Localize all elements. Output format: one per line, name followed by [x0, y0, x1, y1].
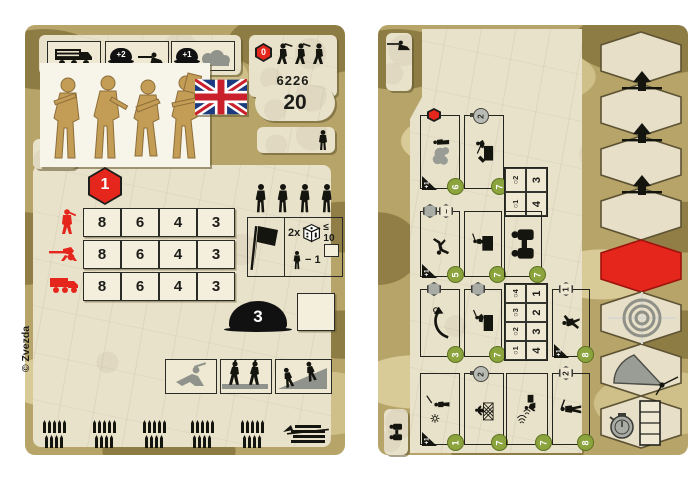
order-number-badge: 5	[447, 266, 464, 283]
marching-pair-icon	[221, 360, 269, 390]
range-band: ○4	[505, 284, 526, 303]
stat-value: 3	[212, 214, 220, 231]
dice-threshold: ≤ 10	[323, 222, 342, 244]
flag-icon	[248, 218, 282, 272]
order-number-badge: 1	[447, 434, 464, 451]
range-band: ○2	[505, 322, 526, 341]
march-penalty-hex: 0	[255, 43, 272, 62]
order-number: 7	[492, 272, 502, 277]
bonus-pennant: +1	[554, 344, 569, 358]
order-box-assault: 1 +1 8	[552, 289, 590, 357]
order-number-badge: 7	[529, 266, 546, 283]
stat-value: 4	[174, 246, 182, 263]
move-crawl-box	[165, 359, 217, 394]
stat-cell: 6	[121, 272, 159, 301]
stat-cell: 8	[83, 272, 121, 301]
order-box-observe: 7	[504, 211, 542, 277]
morale-note-box	[324, 244, 339, 257]
marching-soldiers-icon	[275, 43, 331, 65]
bonus-pennant: +1	[422, 432, 437, 446]
ammo-row	[41, 418, 333, 450]
enemy-red-hex	[601, 240, 681, 292]
climbing-slope-icon	[276, 360, 329, 390]
figures-photo	[40, 63, 210, 167]
entrench-crate-icon	[468, 135, 500, 169]
range-value: 4	[526, 341, 547, 360]
order-box-entrench: 2 7	[464, 115, 504, 189]
range-table-short: ○1 ○2 4 3	[504, 167, 548, 217]
hex-track	[600, 29, 684, 453]
climb-obstacle-icon	[468, 392, 500, 426]
signal-icon	[424, 392, 456, 426]
order-box-casualty: − +1 5	[420, 211, 460, 277]
order-box-radio: 7	[506, 373, 548, 445]
bonus-value: +1	[425, 182, 431, 189]
range-value: 3	[526, 322, 547, 341]
binoculars-icon	[389, 423, 403, 441]
order-box-smoke: +1 6	[420, 115, 460, 189]
trench-bonus-value: +2	[110, 50, 132, 59]
truck-icon-red	[49, 273, 79, 295]
copyright-text: © Zvezda	[20, 326, 32, 372]
crew-box	[257, 127, 335, 153]
stat-cell: 4	[159, 240, 197, 269]
crawling-soldier-icon	[166, 360, 214, 390]
strength-value: 3	[229, 307, 287, 327]
order-number: 7	[532, 272, 542, 277]
march-penalty-value: 0	[255, 47, 272, 57]
stat-cell: 4	[159, 208, 197, 237]
stat-cell: 6	[121, 240, 159, 269]
rally-flag-cell	[248, 218, 285, 276]
stat-value: 8	[98, 214, 106, 231]
hex-number: 1	[561, 287, 570, 291]
order-number: 1	[450, 440, 460, 445]
order-box-climb: 2 7	[464, 373, 504, 445]
order-box-signal: +1 1	[420, 373, 460, 445]
helmet-icon: +1	[176, 48, 198, 61]
order-number: 7	[494, 440, 504, 445]
squad-size-icons	[253, 183, 341, 213]
stat-cell: 4	[159, 272, 197, 301]
stat-cell: 6	[121, 208, 159, 237]
order-number-badge: 8	[577, 346, 594, 363]
radio-contact-icon	[510, 391, 544, 427]
range-band: ○2	[505, 168, 526, 192]
stat-cell: 8	[83, 240, 121, 269]
order-number: 6	[450, 184, 460, 189]
range-band: ○1	[505, 341, 526, 360]
stat-value: 6	[136, 278, 144, 295]
dice-icon	[302, 223, 321, 243]
dice-rule: 2x ≤ 10	[288, 222, 342, 244]
take-cover-icon	[468, 307, 498, 339]
minus-sign: −	[441, 209, 450, 214]
bonus-value: +1	[425, 438, 431, 445]
range-band: ○3	[505, 303, 526, 322]
stat-value: 8	[98, 278, 106, 295]
copyright-label: © Zvezda	[31, 307, 47, 393]
soldier-figurines	[40, 63, 210, 167]
dice-count: 2x	[288, 227, 300, 239]
move-road-box	[220, 359, 272, 394]
unit-card-front: +2 +1 0	[25, 25, 345, 455]
infantry-icon-red	[57, 209, 77, 235]
stat-cell: 3	[197, 240, 235, 269]
bonus-value: +1	[557, 350, 563, 357]
order-number-badge: 3	[447, 346, 464, 363]
range-value: 3	[526, 168, 547, 192]
move-slope-box	[275, 359, 332, 394]
order-number-badge: 8	[577, 434, 594, 451]
range-value: 2	[526, 303, 547, 322]
casualty-icon	[425, 227, 455, 261]
order-number: 7	[492, 352, 502, 357]
union-jack-icon	[195, 79, 247, 115]
march-icon	[556, 393, 586, 425]
order-number: 7	[494, 184, 504, 189]
order-number: 8	[580, 352, 590, 357]
range-value: 1	[526, 284, 547, 303]
alert-hex-value: 1	[88, 176, 122, 194]
order-number: 3	[450, 352, 460, 357]
penalty-value: − 1	[305, 254, 321, 266]
recon-tab	[384, 409, 408, 455]
mount-crate-icon	[468, 228, 498, 260]
helmet-icon: +2	[110, 48, 132, 61]
stat-cell: 3	[197, 208, 235, 237]
order-number: 5	[450, 272, 460, 277]
order-box-march: 2 8	[552, 373, 590, 445]
scan-of-game-cards: +2 +1 0	[0, 0, 700, 480]
order-number: 7	[538, 440, 548, 445]
range-table-long: ○1 ○2 ○3 ○4 4 3 2 1	[504, 283, 548, 361]
morale-box: 2x ≤ 10 − 1	[247, 217, 343, 277]
stat-value: 8	[98, 246, 106, 263]
bonus-pennant: +1	[422, 176, 437, 190]
assault-leap-icon	[556, 307, 586, 339]
prone-sniper-icon	[387, 39, 411, 51]
order-number: 8	[580, 440, 590, 445]
order-number-badge: 6	[447, 178, 464, 195]
sniper-tab	[386, 33, 412, 91]
order-card-back: +1 6 2 7 ○1 ○2 4 3 − +1 5	[378, 25, 688, 455]
points-value: 20	[283, 91, 306, 115]
uk-flag	[195, 79, 247, 115]
move-hex-4	[601, 188, 681, 240]
marker-slot-box	[297, 293, 335, 331]
order-box-mount: 7	[464, 211, 502, 277]
stat-value: 3	[212, 278, 220, 295]
stat-value: 4	[174, 214, 182, 231]
single-soldier-icon	[317, 130, 329, 150]
stat-value: 6	[136, 214, 144, 231]
turn-move-icon	[425, 306, 455, 340]
cover-bonus-value: +1	[176, 50, 198, 59]
stat-value: 6	[136, 246, 144, 263]
hex-number: 2	[561, 371, 570, 375]
order-box-cover: 7	[464, 289, 502, 357]
stat-cell: 3	[197, 272, 235, 301]
ammo-pile-icon	[283, 425, 329, 443]
order-box-turn: 3	[420, 289, 460, 357]
stat-value: 4	[174, 278, 182, 295]
bonus-value: +1	[425, 270, 431, 277]
machine-gun-icon-red	[49, 243, 79, 263]
points-pill: 20	[255, 85, 335, 121]
order-number-badge: 7	[535, 434, 552, 451]
stat-value: 3	[212, 246, 220, 263]
stat-cell: 8	[83, 208, 121, 237]
bonus-pennant: +1	[422, 264, 437, 278]
soldier-icon	[292, 250, 302, 270]
smoke-screen-icon	[424, 135, 456, 169]
binoculars-icon	[509, 228, 537, 260]
morale-penalty: − 1	[292, 250, 321, 270]
